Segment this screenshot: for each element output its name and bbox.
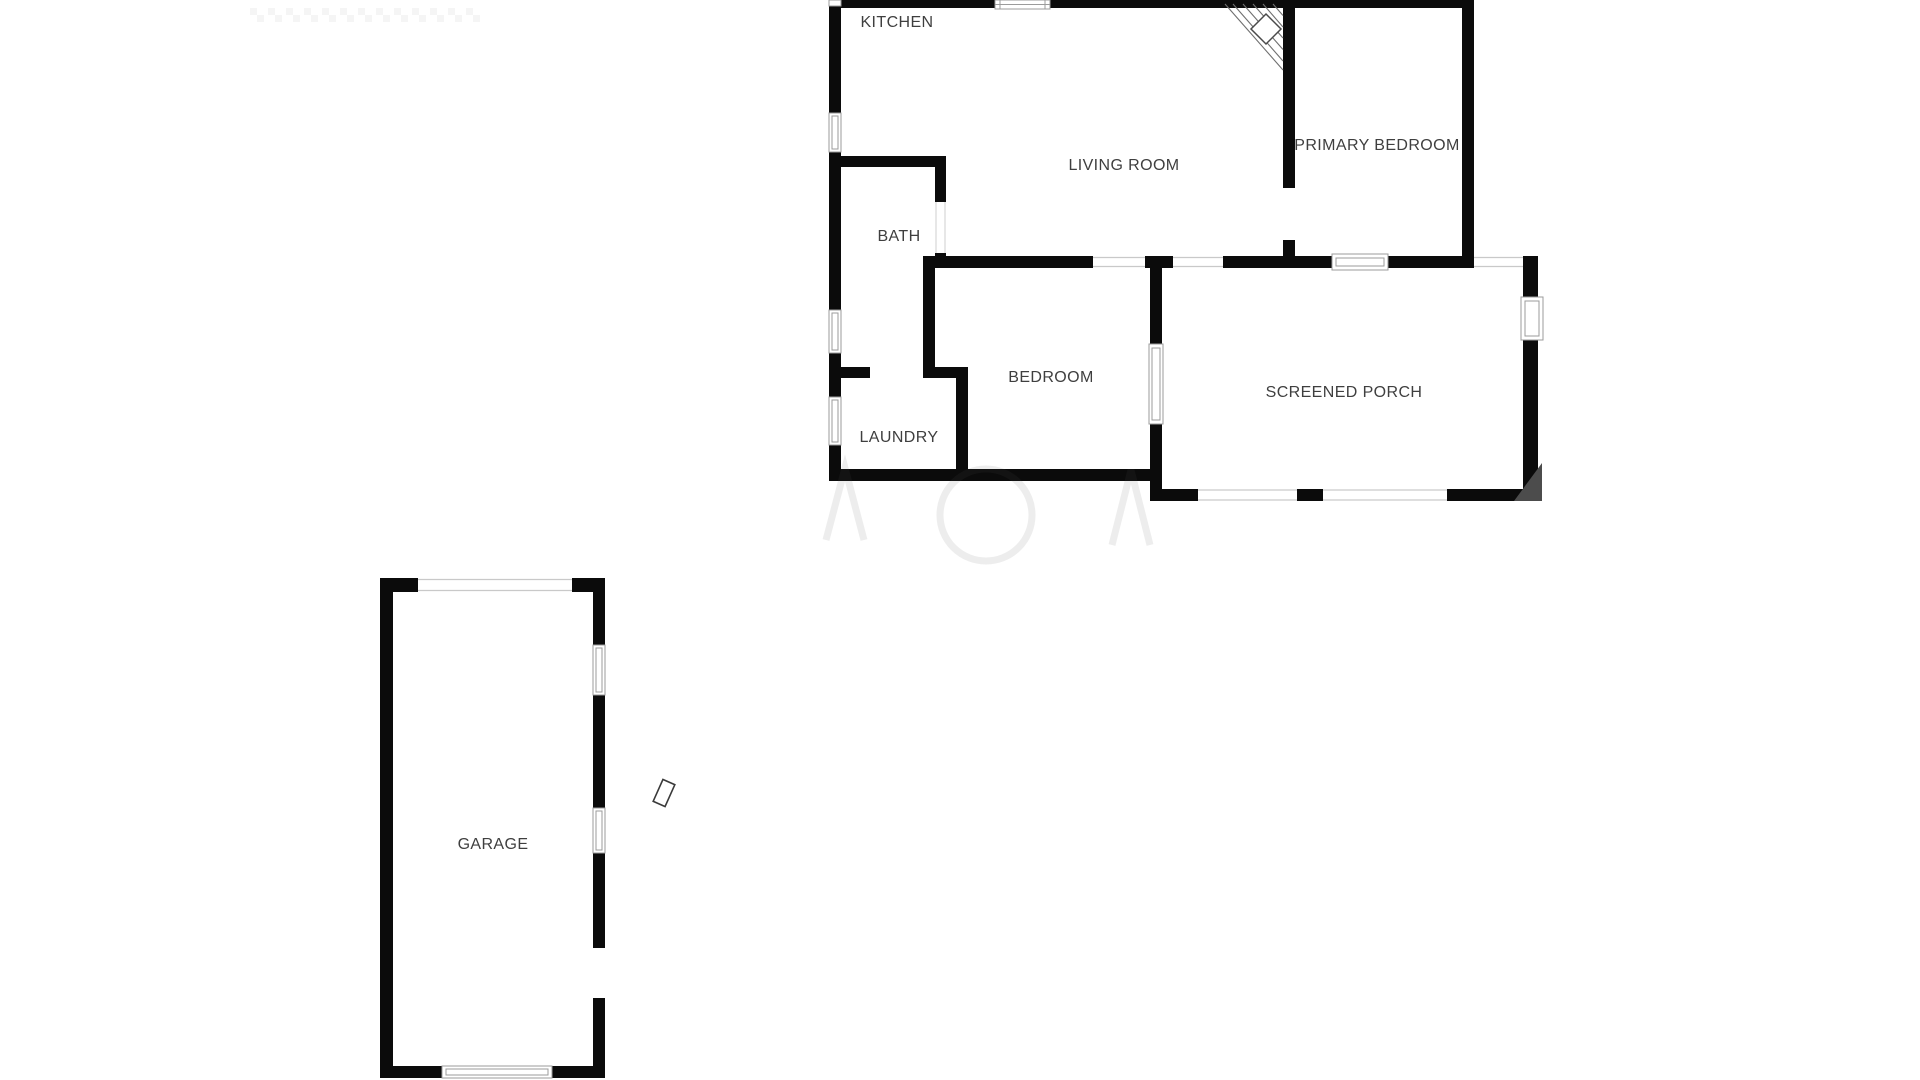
garage-top-opening	[418, 580, 572, 591]
garage-right-window-lower	[593, 808, 605, 853]
floor-plan-page: KITCHEN LIVING ROOM PRIMARY BEDROOM BATH…	[0, 0, 1920, 1080]
room-label-primary-bedroom: PRIMARY BEDROOM	[1294, 137, 1459, 154]
room-label-screened-porch: SCREENED PORCH	[1266, 384, 1423, 401]
room-label-living-room: LIVING ROOM	[1068, 157, 1179, 174]
watermark-pattern-band	[250, 8, 480, 22]
left-wall-window-sliver	[829, 0, 841, 6]
watermark-letters	[826, 468, 1150, 561]
room-label-laundry: LAUNDRY	[860, 429, 939, 446]
primary-bedroom-bottom-window	[1332, 254, 1388, 270]
garage-door-symbol	[442, 1066, 552, 1078]
garage-right-window-upper	[593, 645, 605, 695]
bath-left-window	[829, 310, 841, 353]
garage-walls	[380, 578, 605, 1078]
room-label-kitchen: KITCHEN	[860, 14, 933, 31]
porch-right-window	[1521, 297, 1543, 340]
main-house-walls	[829, 0, 1538, 501]
room-label-garage: GARAGE	[458, 836, 529, 853]
kitchen-left-window	[829, 113, 841, 152]
room-label-bedroom: BEDROOM	[1008, 369, 1093, 386]
stairs-symbol	[1225, 4, 1283, 70]
laundry-left-window	[829, 397, 841, 445]
kitchen-top-window	[995, 0, 1050, 9]
room-label-bath: BATH	[877, 228, 920, 245]
door-leaf-symbol	[653, 779, 675, 806]
floor-plan-canvas: KITCHEN LIVING ROOM PRIMARY BEDROOM BATH…	[0, 0, 1920, 1080]
opening-threshold-lines	[936, 202, 1523, 500]
bedroom-porch-window	[1149, 344, 1163, 424]
